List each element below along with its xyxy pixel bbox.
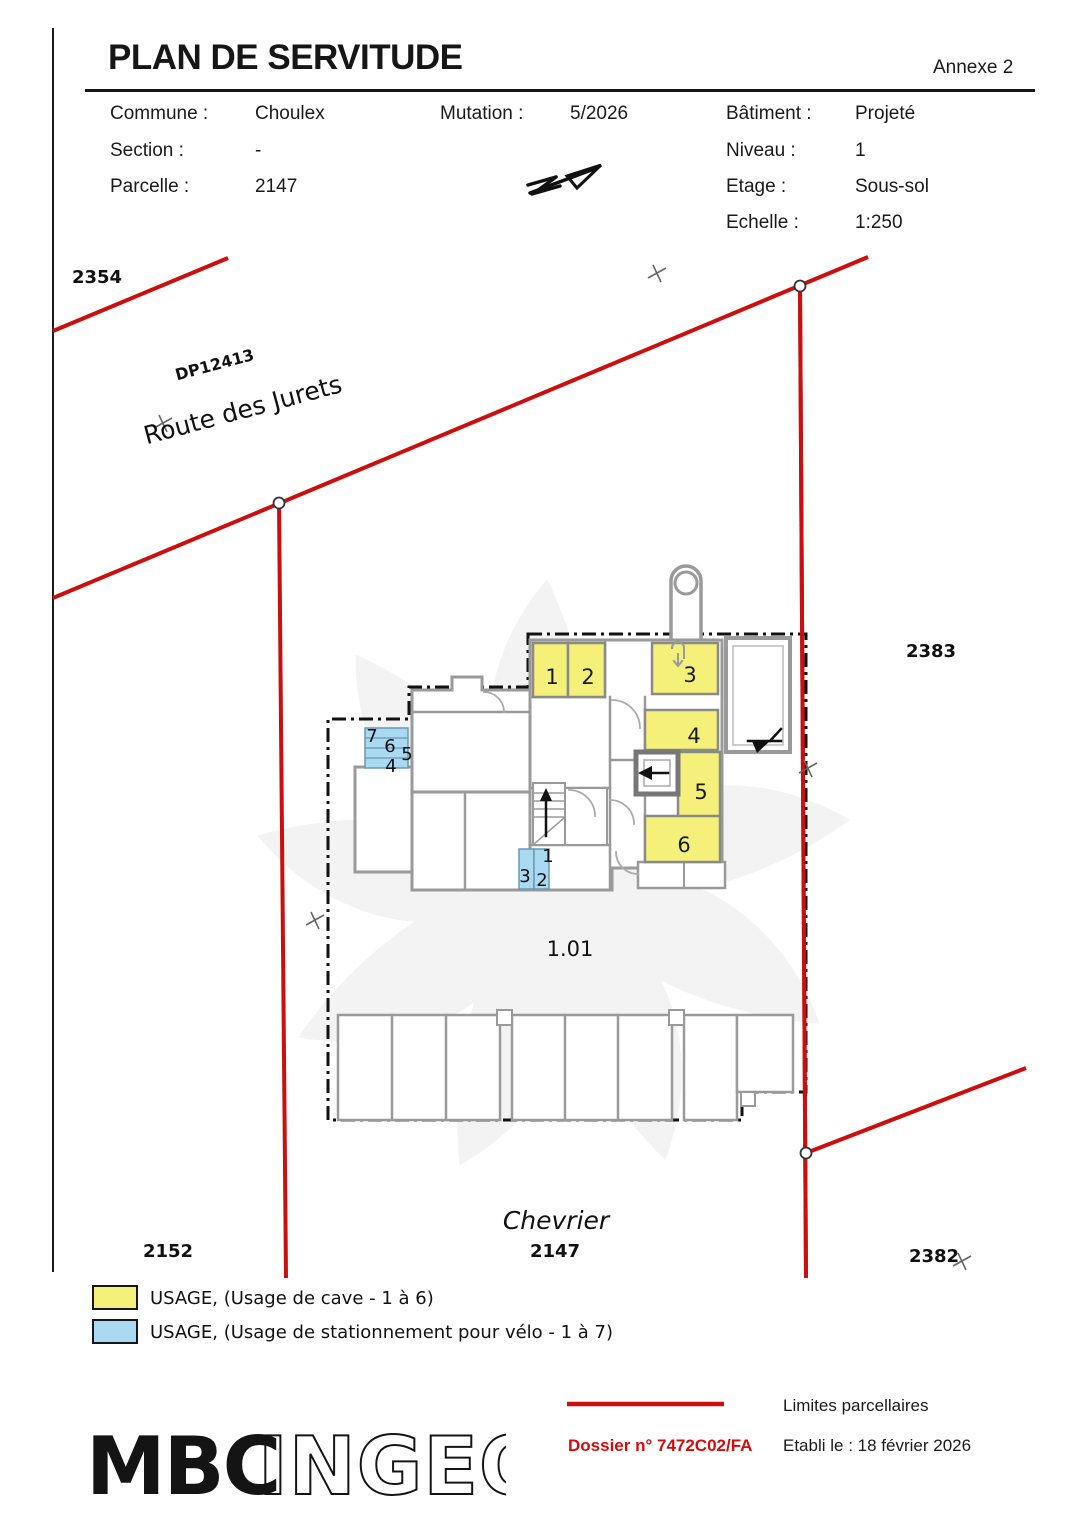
- batiment-label: Bâtiment :: [726, 103, 812, 125]
- niveau-label: Niveau :: [726, 140, 796, 162]
- parcel-label-2147: 2147: [530, 1241, 580, 1262]
- annex-label: Annexe 2: [933, 57, 1013, 79]
- staircase: [533, 783, 565, 845]
- commune-label: Commune :: [110, 103, 208, 125]
- bike-slots-center: 3 2 1: [519, 846, 554, 891]
- parcel-label-2354: 2354: [72, 267, 122, 288]
- legend-bike-label: USAGE, (Usage de stationnement pour vélo…: [150, 1322, 613, 1343]
- road-name-label: Route des Jurets: [141, 369, 345, 450]
- north-arrow-icon: [528, 165, 601, 194]
- dossier-number: Dossier n° 7472C02/FA: [568, 1436, 752, 1456]
- mutation-label: Mutation :: [440, 103, 523, 125]
- echelle-value: 1:250: [855, 212, 903, 234]
- building-outline-lower-left: [412, 792, 530, 890]
- batiment-value: Projeté: [855, 103, 915, 125]
- bike-slot-label: 4: [385, 756, 396, 777]
- commune-value: Choulex: [255, 103, 325, 125]
- bike-slot-label: 5: [401, 744, 412, 765]
- locality-label: Chevrier: [503, 1206, 611, 1235]
- bike-slot-label: 6: [384, 736, 395, 757]
- established-date: Etabli le : 18 février 2026: [783, 1436, 971, 1456]
- niveau-value: 1: [855, 140, 866, 162]
- bike-slot-label: 2: [536, 870, 547, 891]
- parcel-label-2152: 2152: [143, 1241, 193, 1262]
- legend-cave-label: USAGE, (Usage de cave - 1 à 6): [150, 1288, 434, 1309]
- cave-room-label: 6: [677, 833, 690, 857]
- cave-room-label: 2: [581, 665, 594, 689]
- building-ref-label: 1.01: [547, 937, 594, 961]
- cellar-cells-below: [638, 862, 725, 888]
- mbc-ingeo-logo: MBC INGEO: [86, 1418, 506, 1518]
- legend-bike-swatch: [92, 1319, 138, 1344]
- logo-outline-text: INGEO: [258, 1420, 506, 1513]
- cave-room-label: 1: [545, 665, 558, 689]
- limit-line-bottom-right: [806, 1068, 1026, 1153]
- plan-de-servitude-page: 1 2 3 4 5 6: [0, 0, 1086, 1536]
- logo-solid-text: MBC: [86, 1420, 279, 1513]
- limit-line-left-vertical: [279, 503, 286, 1278]
- building-outline-left-room: [355, 767, 412, 872]
- elevator: [636, 752, 678, 794]
- bike-slot-label: 1: [542, 846, 553, 867]
- bike-slot-label: 7: [366, 726, 377, 747]
- cave-room-4: [645, 710, 718, 750]
- bike-slot-label: 3: [519, 866, 530, 887]
- page-title: PLAN DE SERVITUDE: [108, 38, 463, 78]
- mutation-value: 5/2026: [570, 103, 628, 125]
- parking-stalls: [338, 1010, 793, 1120]
- legend-cave-swatch: [92, 1285, 138, 1310]
- building-outline-left-wing: [412, 677, 530, 792]
- echelle-label: Echelle :: [726, 212, 799, 234]
- section-value: -: [255, 140, 261, 162]
- parcel-label-2382: 2382: [909, 1246, 959, 1267]
- cave-room-label: 4: [687, 724, 700, 748]
- parcelle-label: Parcelle :: [110, 176, 189, 198]
- parcelle-value: 2147: [255, 176, 297, 198]
- section-label: Section :: [110, 140, 184, 162]
- header-divider: [85, 89, 1035, 92]
- etage-label: Etage :: [726, 176, 786, 198]
- cave-room-label: 5: [694, 780, 707, 804]
- parcel-label-2383: 2383: [906, 641, 956, 662]
- road-ref-label: DP12413: [173, 345, 256, 384]
- building-annex-right: [726, 638, 790, 752]
- etage-value: Sous-sol: [855, 176, 929, 198]
- limits-parcellaires-label: Limites parcellaires: [783, 1396, 929, 1416]
- cave-room-label: 3: [683, 663, 696, 687]
